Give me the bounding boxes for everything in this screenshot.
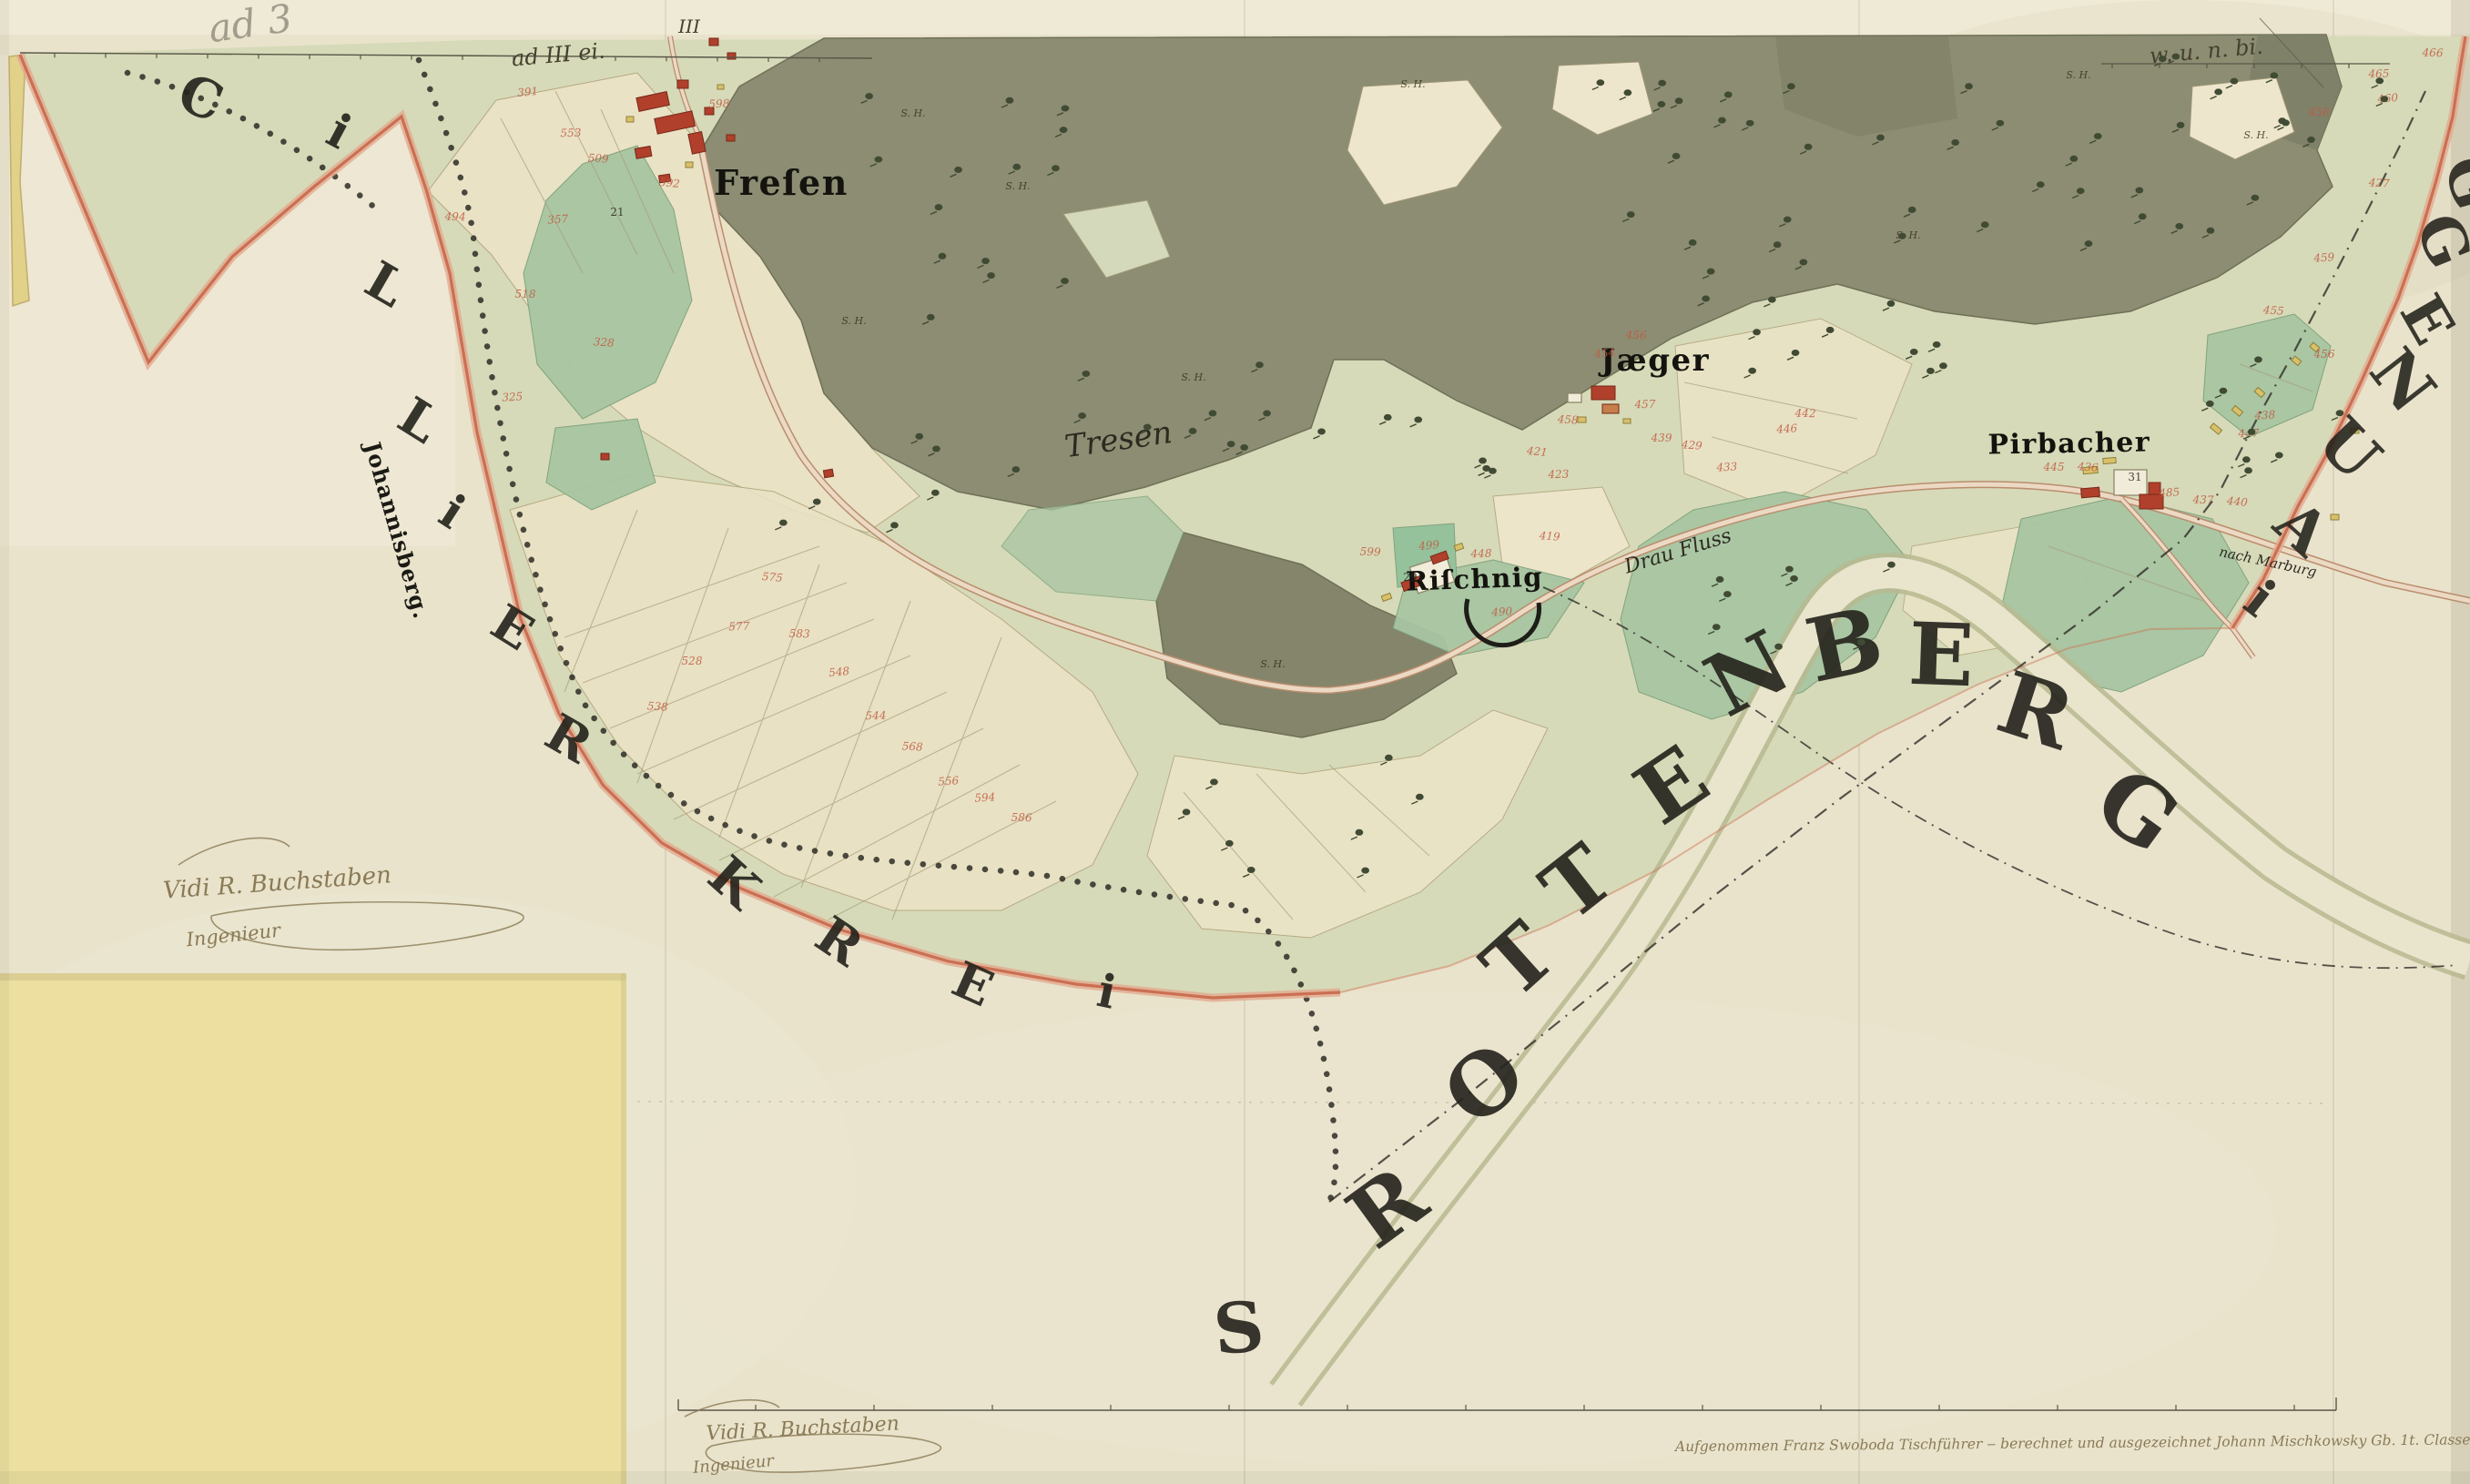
parcel-number: 391 [517, 85, 539, 99]
parcel-number: 357 [547, 212, 569, 227]
parcel-number: 445 [2043, 461, 2065, 473]
map-canvas: ad 3ad III ei.IIIw. u. n. bi. CiLLiERKRE… [0, 0, 2470, 1484]
parcel-number: 455 [2262, 303, 2284, 318]
parcel-number: 439 [1651, 432, 1672, 444]
parcel-number: 325 [502, 390, 523, 403]
parcel-number: 442 [1794, 407, 1815, 420]
house-number: 29 [1403, 571, 1417, 584]
forest-mark: S. H. [2066, 69, 2090, 81]
parcel-number: 575 [761, 570, 783, 584]
district-letter: E [1906, 605, 1975, 706]
parcel-number: 454 [1593, 346, 1616, 361]
parcel-number: 509 [587, 151, 609, 165]
parcel-number: 544 [865, 709, 886, 722]
parcel-number: 446 [1775, 422, 1798, 436]
parcel-number: 436 [2076, 460, 2099, 474]
forest-mark: S. H. [841, 315, 866, 327]
parcel-number: 459 [2312, 250, 2335, 265]
cadastral-map-sheet: ad 3ad III ei.IIIw. u. n. bi. CiLLiERKRE… [0, 0, 2470, 1484]
parcel-number: 423 [1547, 468, 1570, 482]
parcel-number: 328 [593, 335, 615, 350]
parcel-number: 456 [2313, 348, 2335, 361]
forest-mark: S. H. [2243, 129, 2268, 141]
parcel-number: 421 [1525, 444, 1548, 459]
parcel-number: 448 [1469, 547, 1492, 560]
parcel-number: 548 [828, 665, 850, 679]
parcel-number: 577 [728, 620, 750, 634]
parcel-number: 556 [938, 774, 960, 788]
house-number: 31 [2128, 471, 2141, 483]
forest-mark: S. H. [1181, 371, 1205, 383]
backing-sheet [0, 973, 626, 1484]
parcel-number: 458 [1556, 412, 1579, 426]
parcel-number: 485 [2158, 485, 2180, 499]
house-number: 21 [610, 206, 624, 219]
parcel-number: 594 [974, 790, 996, 804]
forest-mark: S. H. [1005, 180, 1030, 192]
parcel-number: 490 [1490, 605, 1513, 619]
place-label: Pirbacher [1987, 426, 2150, 461]
parcel-number: 466 [2421, 46, 2444, 59]
parcel-number: 456 [1624, 329, 1647, 342]
parcel-number: 598 [708, 97, 730, 111]
forest-mark: S. H. [1400, 78, 1425, 90]
parcel-number: 440 [2225, 494, 2248, 509]
sheet-number: III [677, 15, 701, 37]
forest-mark: S. H. [900, 107, 925, 119]
forest-mark: S. H. [1260, 658, 1285, 670]
parcel-number: 583 [788, 627, 810, 641]
parcel-number: 599 [1359, 545, 1381, 559]
parcel-number: 429 [1680, 438, 1703, 452]
parcel-number: 538 [646, 699, 668, 714]
parcel-number: 457 [1633, 398, 1656, 411]
parcel-number: 499 [1418, 538, 1440, 553]
place-label: Riſchnig [1406, 561, 1544, 596]
parcel-number: 458 [2307, 106, 2330, 119]
parcel-number: 433 [1715, 460, 1738, 473]
parcel-number: 528 [682, 655, 703, 667]
parcel-number: 586 [1011, 811, 1032, 824]
parcel-number: 438 [2253, 408, 2276, 422]
parcel-number: 568 [901, 739, 923, 753]
parcel-number: 427 [2367, 176, 2390, 189]
parcel-number: 518 [515, 288, 536, 300]
parcel-number: 437 [2191, 493, 2214, 506]
parcel-number: 592 [658, 176, 680, 190]
parcel-number: 419 [1538, 529, 1560, 543]
parcel-number: 553 [560, 127, 582, 139]
parcel-number: 494 [443, 210, 465, 223]
place-label: Freſen [714, 162, 849, 203]
district-letter: S [1210, 1286, 1266, 1370]
